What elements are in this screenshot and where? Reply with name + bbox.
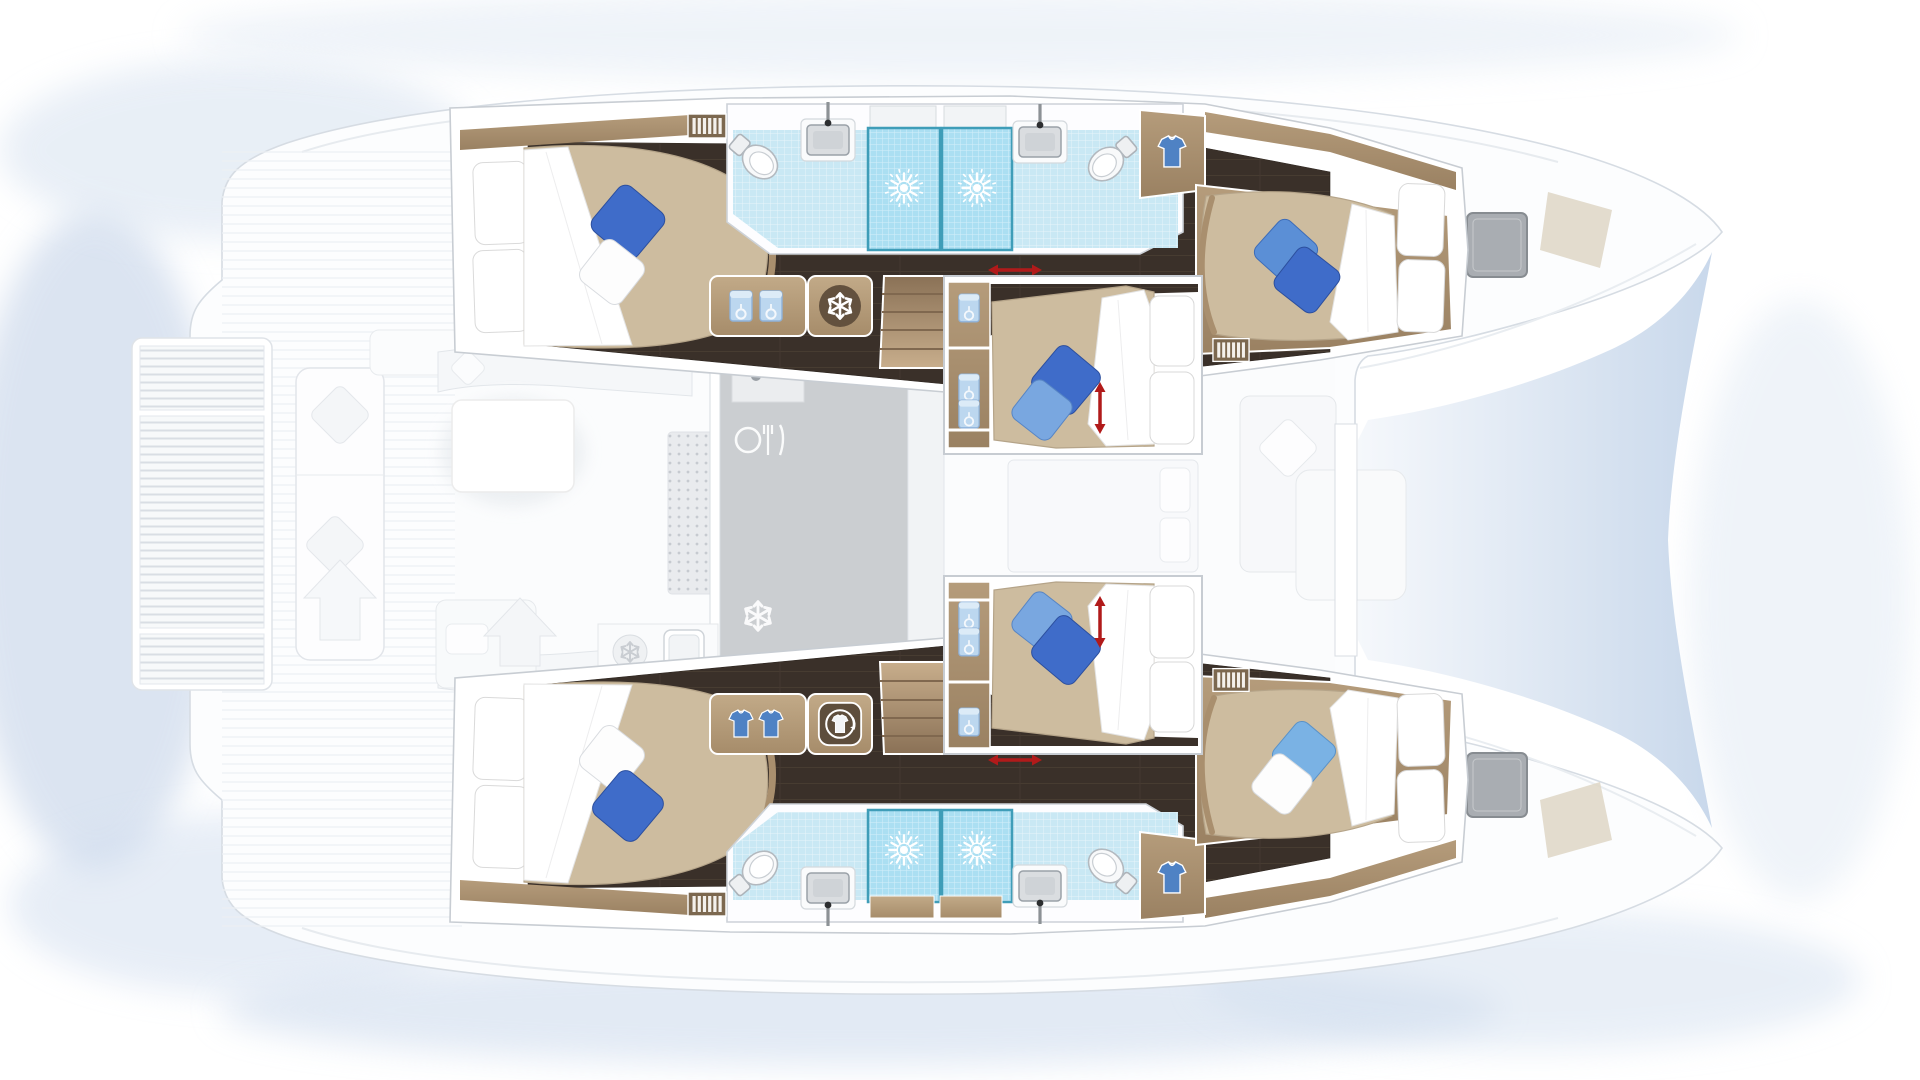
hanging-bag-icon <box>959 374 979 402</box>
cabin-center-upper <box>944 276 1202 454</box>
stairs-upper <box>880 276 948 368</box>
deck-hatch-upper <box>1467 213 1527 277</box>
shower-stall <box>942 810 1012 902</box>
sunburst-icon <box>959 832 996 869</box>
louver-vent <box>688 114 726 138</box>
washing-machine-icon <box>819 703 861 745</box>
floorplan-canvas <box>0 0 1920 1080</box>
cabin-center-lower <box>944 576 1202 754</box>
hanging-bag-icon <box>730 291 752 321</box>
hanging-bag-icon <box>959 628 979 656</box>
shower-stall <box>868 810 940 902</box>
catamaran-floorplan <box>0 0 1920 1080</box>
hanging-bag-icon <box>959 294 979 322</box>
hanging-bag-icon <box>760 291 782 321</box>
bathroom-lower <box>724 804 1205 926</box>
louver-vent <box>688 892 726 916</box>
hanging-bag-icon <box>959 400 979 428</box>
hanging-bag-icon <box>959 602 979 630</box>
bathroom-upper <box>724 102 1205 254</box>
sunburst-icon <box>886 832 923 869</box>
sunburst-icon <box>886 170 923 207</box>
sunburst-icon <box>959 170 996 207</box>
stairs-lower <box>880 662 948 754</box>
cabin-lower-forward <box>1196 676 1452 845</box>
louver-vent <box>1213 669 1249 692</box>
louver-vent <box>1213 339 1249 362</box>
deck-hatch-lower <box>1467 753 1527 817</box>
cabin-upper-forward <box>1196 183 1452 354</box>
coffee-table <box>452 400 574 492</box>
hanging-bag-icon <box>959 708 979 736</box>
dotted-rug <box>668 432 714 594</box>
aft-swim-platform <box>132 338 272 690</box>
